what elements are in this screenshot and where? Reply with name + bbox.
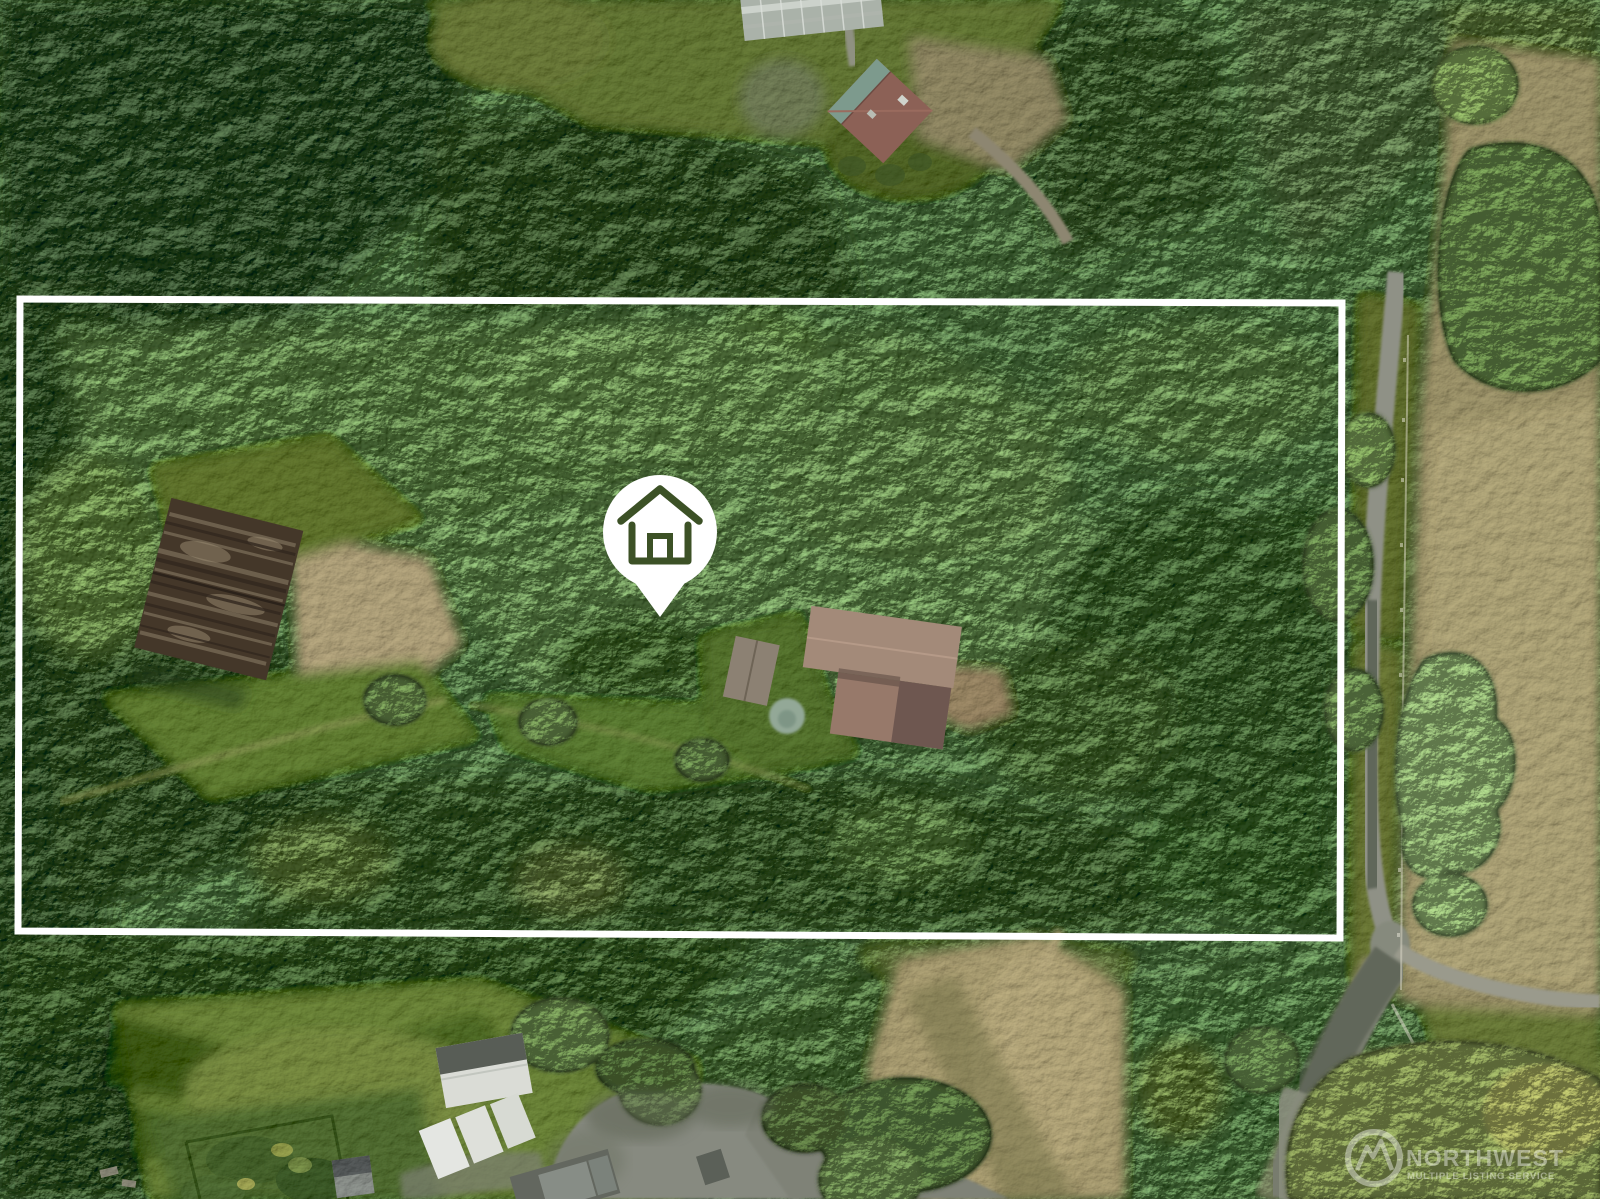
svg-text:NORTHWEST: NORTHWEST <box>1406 1145 1564 1171</box>
svg-text:MULTIPLE LISTING SERVICE: MULTIPLE LISTING SERVICE <box>1407 1171 1555 1182</box>
